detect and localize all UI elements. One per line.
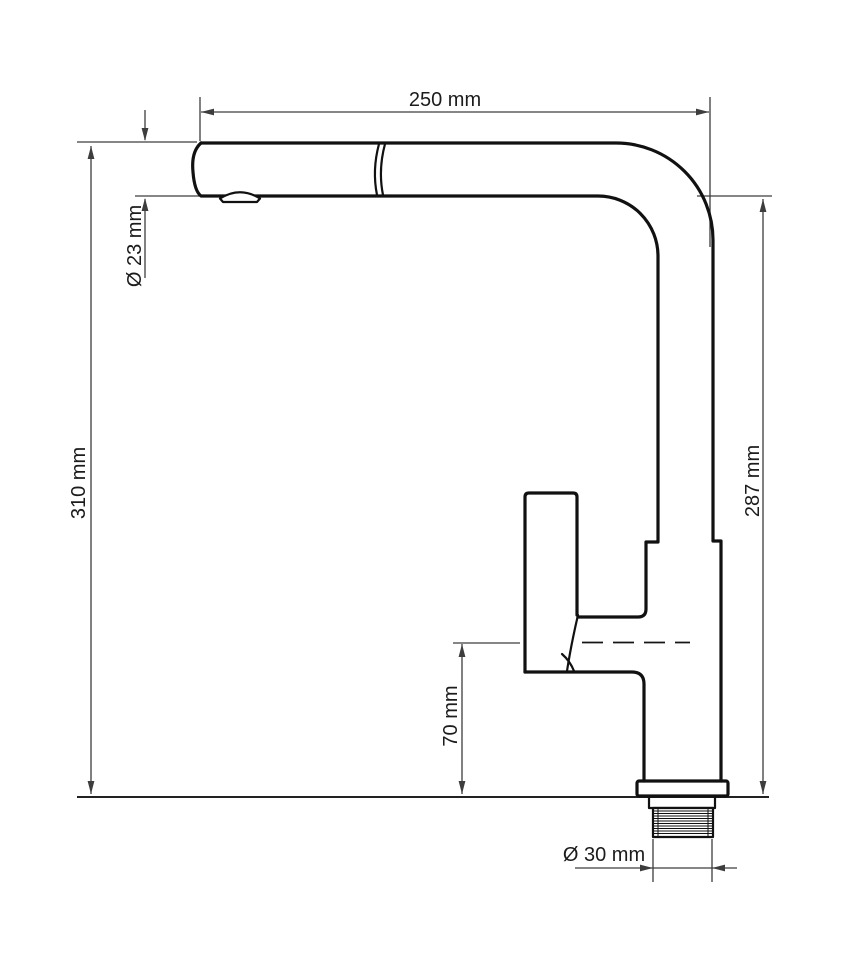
spray-head-joint-line-right xyxy=(381,144,385,195)
arrowhead-up-icon xyxy=(760,199,767,212)
total-height-dimension: 310 mm xyxy=(68,146,94,794)
total-height-label: 310 mm xyxy=(68,447,90,519)
base-flange xyxy=(637,781,728,796)
outlet-height-label: 287 mm xyxy=(742,445,764,517)
arrowhead-left-icon xyxy=(201,109,214,116)
threaded-shank xyxy=(653,808,713,837)
technical-drawing-canvas: 250 mm Ø 23 mm 310 mm 287 mm xyxy=(0,0,861,958)
handle-lever xyxy=(525,493,577,672)
arrowhead-right-icon xyxy=(696,109,709,116)
handle-height-label: 70 mm xyxy=(440,685,462,746)
arrowhead-down-icon xyxy=(760,781,767,794)
spout-diameter-label: Ø 23 mm xyxy=(124,205,146,287)
spout-length-dimension: 250 mm xyxy=(201,89,709,115)
arrowhead-up-icon xyxy=(88,146,95,159)
arrowhead-down-icon xyxy=(142,128,149,141)
spray-head-joint-line-left xyxy=(375,144,379,195)
arrowhead-up-icon xyxy=(459,644,466,657)
shank-diameter-dimension: Ø 30 mm xyxy=(563,844,737,871)
extension-lines xyxy=(77,97,772,882)
arrowhead-left-icon xyxy=(712,865,725,872)
handle-height-dimension: 70 mm xyxy=(440,644,465,794)
outlet-height-dimension: 287 mm xyxy=(742,199,766,794)
arrowhead-down-icon xyxy=(88,781,95,794)
shank-body xyxy=(653,808,713,837)
spout-and-riser-left-edge xyxy=(193,143,658,617)
aerator-bump xyxy=(220,192,260,202)
arrowhead-down-icon xyxy=(459,781,466,794)
faucet-outline xyxy=(77,143,769,837)
spout-diameter-dimension: Ø 23 mm xyxy=(124,110,148,287)
faucet-dimension-diagram: 250 mm Ø 23 mm 310 mm 287 mm xyxy=(0,0,861,958)
handle-connector-bottom xyxy=(525,672,644,781)
spout-length-label: 250 mm xyxy=(409,89,481,111)
shank-diameter-label: Ø 30 mm xyxy=(563,844,645,866)
